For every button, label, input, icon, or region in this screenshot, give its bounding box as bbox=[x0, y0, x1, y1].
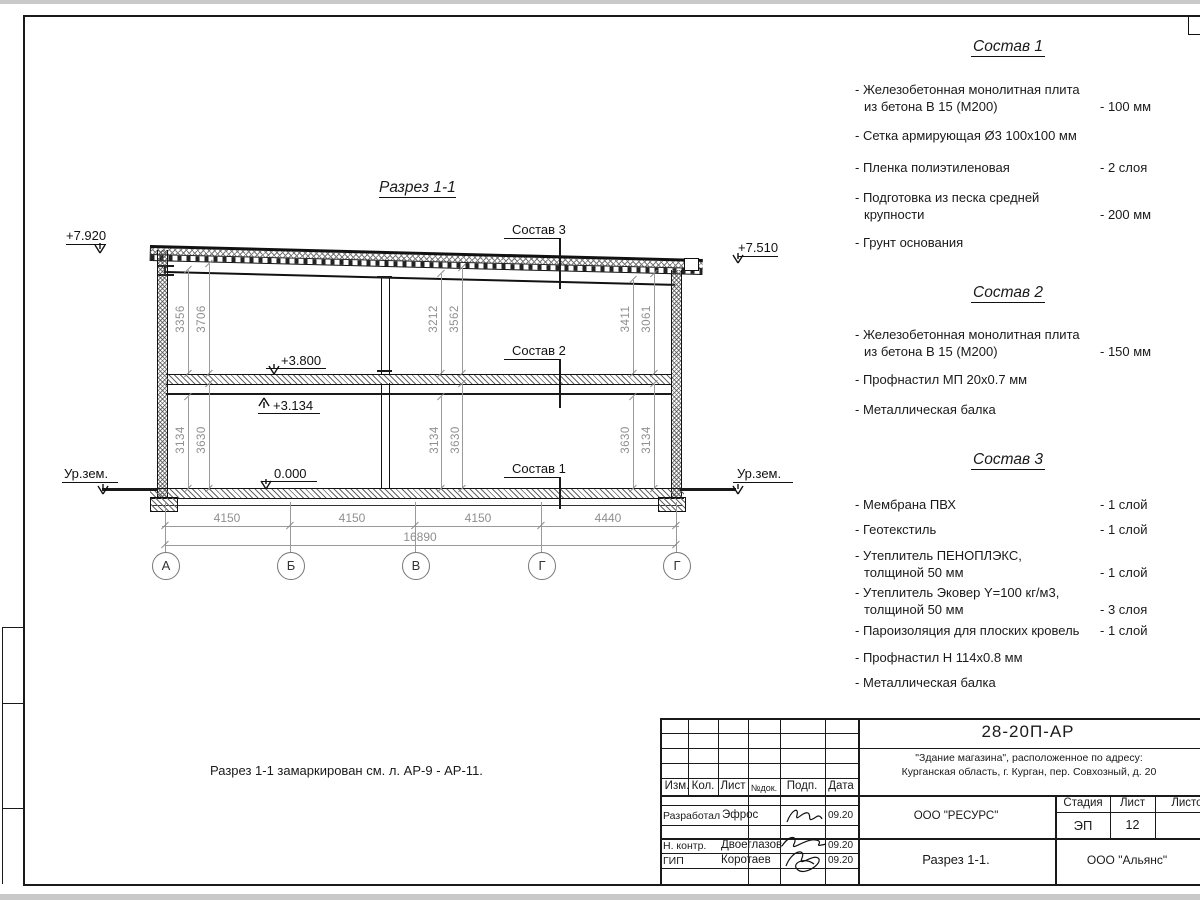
roof-beam bbox=[166, 271, 675, 286]
elevation-arrow-down-icon bbox=[92, 242, 108, 255]
item-text: - Металлическая балка bbox=[855, 401, 1200, 418]
tb-role: Разработал bbox=[663, 810, 720, 822]
list-item: - Пленка полиэтиленовая - 2 слоя bbox=[855, 159, 1200, 176]
tb-line bbox=[660, 748, 858, 749]
ext-line bbox=[188, 270, 189, 374]
view-title: Разрез 1-1 bbox=[379, 180, 456, 198]
item-text: толщиной 50 мм bbox=[855, 564, 1200, 581]
item-text: - Профнастил МП 20х0.7 мм bbox=[855, 371, 1200, 388]
composition-list-3: Состав 3 - Мембрана ПВХ - 1 слой - Геоте… bbox=[855, 451, 1200, 696]
bay-dim: 4150 bbox=[327, 511, 377, 525]
vdim-label: 3061 bbox=[641, 297, 653, 341]
grid-bubble: Г bbox=[528, 552, 556, 580]
leader-sostav1: Состав 1 bbox=[512, 461, 566, 476]
leader-line bbox=[559, 477, 561, 509]
item-value: - 100 мм bbox=[1100, 98, 1151, 115]
elevation-arrow-down-icon bbox=[730, 252, 746, 265]
item-value: - 1 слой bbox=[1100, 496, 1148, 513]
ext-line bbox=[188, 397, 189, 489]
floor2-beam bbox=[166, 393, 672, 395]
item-value: - 3 слоя bbox=[1100, 601, 1147, 618]
roof-end-cap bbox=[684, 258, 699, 271]
tb-sheets-label: Листов bbox=[1155, 797, 1200, 809]
frame-bottom bbox=[23, 884, 1200, 886]
grid-bubble: А bbox=[152, 552, 180, 580]
tb-line bbox=[660, 825, 858, 826]
subbase-line bbox=[152, 505, 682, 506]
item-text: - Профнастил Н 114х0.8 мм bbox=[855, 649, 1200, 666]
tb-object-line2: Курганская область, г. Курган, пер. Совх… bbox=[858, 766, 1200, 778]
margin-box-line bbox=[2, 808, 23, 809]
composition-title-text: Состав 1 bbox=[971, 38, 1045, 57]
item-text: - Утеплитель Эковер Y=100 кг/м3, bbox=[855, 584, 1200, 601]
ext-line bbox=[462, 268, 463, 374]
tb-sheet-label: Лист bbox=[1110, 797, 1155, 809]
tb-col-header: Подп. bbox=[782, 780, 822, 792]
item-value: - 1 слой bbox=[1100, 564, 1148, 581]
tb-doc-number: 28-20П-АР bbox=[908, 722, 1148, 742]
list-item: - Сетка армирующая Ø3 100х100 мм bbox=[855, 127, 1200, 144]
tb-name: Коротаев bbox=[721, 854, 771, 866]
item-text: - Железобетонная монолитная плита bbox=[855, 81, 1200, 98]
grid-bubble: Г bbox=[663, 552, 691, 580]
grid-bubble: Б bbox=[277, 552, 305, 580]
tb-name: Двоеглазов bbox=[721, 839, 782, 851]
ext-line bbox=[441, 274, 442, 374]
vdim-label: 3411 bbox=[620, 297, 632, 341]
dim-line-total bbox=[165, 545, 676, 546]
vdim-label: 3706 bbox=[196, 297, 208, 341]
tb-date: 09.20 bbox=[828, 810, 853, 821]
ground-line-right bbox=[680, 488, 736, 491]
list-item: - Утеплитель Эковер Y=100 кг/м3, толщино… bbox=[855, 584, 1200, 618]
margin-box-line bbox=[2, 627, 23, 628]
floor1-slab bbox=[150, 488, 684, 499]
list-item: - Профнастил Н 114х0.8 мм bbox=[855, 649, 1200, 666]
elev-floor2-top: +3.800 bbox=[281, 353, 321, 368]
elevation-arrow-down-icon bbox=[258, 478, 274, 491]
bay-dim: 4150 bbox=[453, 511, 503, 525]
vdim-label: 3630 bbox=[620, 418, 632, 462]
total-dim: 16890 bbox=[395, 530, 445, 544]
vdim-label: 3630 bbox=[450, 418, 462, 462]
tb-object-line1: "Здание магазина", расположенное по адре… bbox=[858, 752, 1200, 764]
list-item: - Грунт основания bbox=[855, 234, 1200, 251]
roof-slab bbox=[150, 245, 703, 274]
column-upper bbox=[381, 278, 390, 374]
item-text: - Пароизоляция для плоских кровель bbox=[855, 622, 1200, 639]
composition-list-2: Состав 2 - Железобетонная монолитная пли… bbox=[855, 284, 1200, 434]
vdim-label: 3356 bbox=[175, 297, 187, 341]
ext-line bbox=[633, 280, 634, 374]
ground-level-right: Ур.зем. bbox=[737, 466, 781, 481]
signature-scribble bbox=[783, 804, 825, 828]
item-value: - 2 слоя bbox=[1100, 159, 1147, 176]
ext-line bbox=[633, 397, 634, 489]
elevation-arrow-down-icon bbox=[266, 363, 282, 376]
composition-list-1: Состав 1 - Железобетонная монолитная пли… bbox=[855, 38, 1200, 298]
composition-title: Состав 3 bbox=[855, 451, 1161, 469]
list-item: - Железобетонная монолитная плита из бет… bbox=[855, 81, 1200, 115]
item-text: - Металлическая балка bbox=[855, 674, 1200, 691]
frame-top bbox=[23, 15, 1200, 17]
list-item: - Геотекстиль - 1 слой bbox=[855, 521, 1200, 538]
vdim-label: 3562 bbox=[449, 297, 461, 341]
tb-line bbox=[1055, 812, 1200, 813]
column-flange bbox=[377, 370, 392, 372]
tb-line bbox=[660, 733, 858, 734]
leader-line bbox=[559, 359, 561, 408]
leader-shelf bbox=[504, 359, 561, 360]
floor2-slab bbox=[166, 374, 671, 385]
composition-title-text: Состав 3 bbox=[971, 451, 1045, 470]
vdim-label: 3630 bbox=[196, 418, 208, 462]
item-value: - 200 мм bbox=[1100, 206, 1151, 223]
tb-contractor: ООО "Альянс" bbox=[1055, 853, 1199, 867]
leader-shelf bbox=[504, 238, 561, 239]
ext-line bbox=[654, 274, 655, 374]
list-item: - Утеплитель ПЕНОПЛЭКС, толщиной 50 мм -… bbox=[855, 547, 1200, 581]
tb-line bbox=[660, 778, 858, 779]
signature-scribble bbox=[776, 832, 832, 876]
margin-box-line bbox=[2, 703, 23, 704]
composition-title-text: Состав 2 bbox=[971, 284, 1045, 303]
right-wall bbox=[671, 270, 682, 497]
bay-dim: 4440 bbox=[583, 511, 633, 525]
leader-sostav3: Состав 3 bbox=[512, 222, 566, 237]
margin-box-line bbox=[2, 627, 3, 884]
tb-col-header: Дата bbox=[821, 780, 861, 792]
left-footing bbox=[150, 497, 178, 512]
vdim-label: 3212 bbox=[428, 297, 440, 341]
tb-line bbox=[660, 763, 858, 764]
list-item: - Мембрана ПВХ - 1 слой bbox=[855, 496, 1200, 513]
item-text: - Утеплитель ПЕНОПЛЭКС, bbox=[855, 547, 1200, 564]
frame-left bbox=[23, 15, 25, 886]
tb-stage-value: ЭП bbox=[1058, 818, 1108, 833]
grid-bubble: В bbox=[402, 552, 430, 580]
frame-corner-box bbox=[1188, 17, 1200, 35]
ext-line bbox=[209, 384, 210, 489]
tb-col-header: №док. bbox=[744, 783, 784, 793]
item-text: - Геотекстиль bbox=[855, 521, 1200, 538]
item-text: толщиной 50 мм bbox=[855, 601, 1200, 618]
ground-level-left: Ур.зем. bbox=[64, 466, 108, 481]
vdim-label: 3134 bbox=[429, 418, 441, 462]
elev-shelf bbox=[258, 413, 320, 414]
ext-line bbox=[209, 264, 210, 374]
list-item: - Железобетонная монолитная плита из бет… bbox=[855, 326, 1200, 360]
elevation-arrow-down-icon bbox=[95, 483, 111, 496]
tb-line bbox=[858, 748, 1200, 749]
tb-role: Н. контр. bbox=[663, 840, 706, 852]
vdim-label: 3134 bbox=[175, 418, 187, 462]
tb-org: ООО "РЕСУРС" bbox=[856, 810, 1056, 822]
item-text: - Сетка армирующая Ø3 100х100 мм bbox=[855, 127, 1200, 144]
list-item: - Подготовка из песка средней крупности … bbox=[855, 189, 1200, 223]
ext-line bbox=[654, 384, 655, 489]
top-edge-strip bbox=[0, 0, 1200, 4]
tb-stage-label: Стадия bbox=[1058, 797, 1108, 809]
tb-sheet-title: Разрез 1-1. bbox=[856, 852, 1056, 867]
dim-line-bays bbox=[162, 526, 679, 527]
item-text: - Мембрана ПВХ bbox=[855, 496, 1200, 513]
right-footing bbox=[658, 497, 686, 512]
tb-sheet-value: 12 bbox=[1110, 818, 1155, 832]
tb-border bbox=[660, 718, 1200, 720]
item-value: - 150 мм bbox=[1100, 343, 1151, 360]
tb-border bbox=[660, 718, 662, 886]
leader-shelf bbox=[504, 477, 561, 478]
composition-title: Состав 2 bbox=[855, 284, 1161, 302]
bay-dim: 4150 bbox=[202, 511, 252, 525]
leader-sostav2: Состав 2 bbox=[512, 343, 566, 358]
tb-name: Эфрос bbox=[722, 809, 758, 821]
drawing-sheet: Разрез 1-1 3356 3706 3212 3562 3411 3061 bbox=[0, 0, 1200, 900]
item-text: - Железобетонная монолитная плита bbox=[855, 326, 1200, 343]
elevation-arrow-up-icon bbox=[256, 396, 272, 409]
item-value: - 1 слой bbox=[1100, 622, 1148, 639]
column-lower bbox=[381, 383, 390, 489]
elev-floor2-beam: +3.134 bbox=[273, 398, 313, 413]
composition-title: Состав 1 bbox=[855, 38, 1161, 56]
list-item: - Профнастил МП 20х0.7 мм bbox=[855, 371, 1200, 388]
item-text: - Пленка полиэтиленовая bbox=[855, 159, 1200, 176]
vdim-label: 3134 bbox=[641, 418, 653, 462]
tb-role: ГИП bbox=[663, 855, 684, 867]
item-text: - Подготовка из песка средней bbox=[855, 189, 1200, 206]
leader-line bbox=[559, 238, 561, 289]
ext-line bbox=[441, 397, 442, 489]
tb-line bbox=[660, 805, 858, 806]
list-item: - Металлическая балка bbox=[855, 674, 1200, 691]
drawing-note: Разрез 1-1 замаркирован см. л. АР-9 - АР… bbox=[210, 763, 483, 779]
elev-floor1: 0.000 bbox=[274, 466, 307, 481]
list-item: - Пароизоляция для плоских кровель - 1 с… bbox=[855, 622, 1200, 639]
list-item: - Металлическая балка bbox=[855, 401, 1200, 418]
item-value: - 1 слой bbox=[1100, 521, 1148, 538]
elevation-arrow-down-icon bbox=[730, 483, 746, 496]
item-text: - Грунт основания bbox=[855, 234, 1200, 251]
ext-line bbox=[462, 384, 463, 489]
bottom-edge-strip bbox=[0, 894, 1200, 900]
